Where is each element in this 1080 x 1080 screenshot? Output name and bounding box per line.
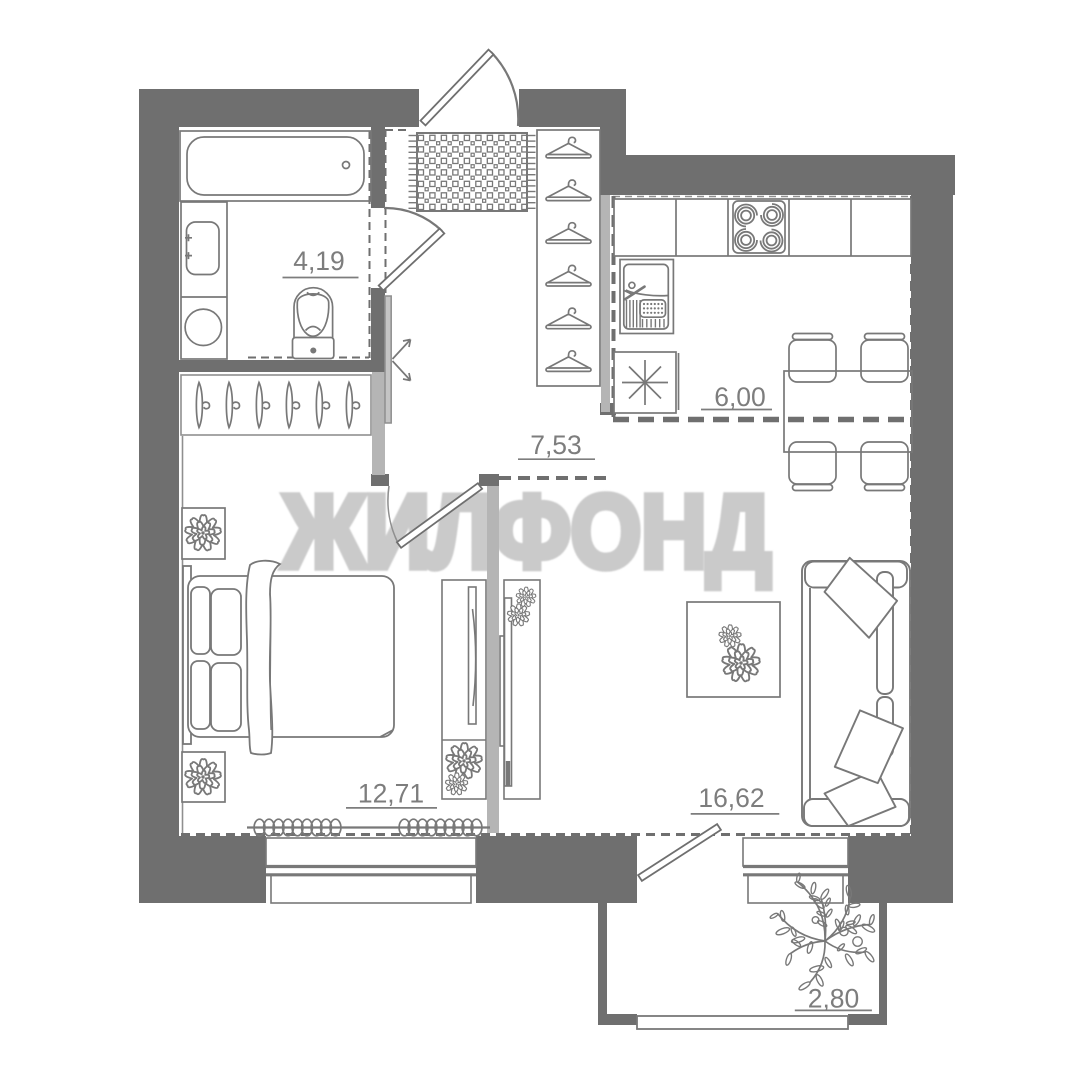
- svg-text:7,53: 7,53: [530, 430, 582, 460]
- svg-text:16,62: 16,62: [698, 783, 764, 813]
- svg-text:6,00: 6,00: [714, 382, 766, 412]
- svg-text:12,71: 12,71: [358, 779, 424, 809]
- svg-text:4,19: 4,19: [293, 246, 345, 276]
- svg-text:2,80: 2,80: [808, 984, 860, 1014]
- svg-text:ЖИЛФОНД: ЖИЛФОНД: [282, 474, 771, 589]
